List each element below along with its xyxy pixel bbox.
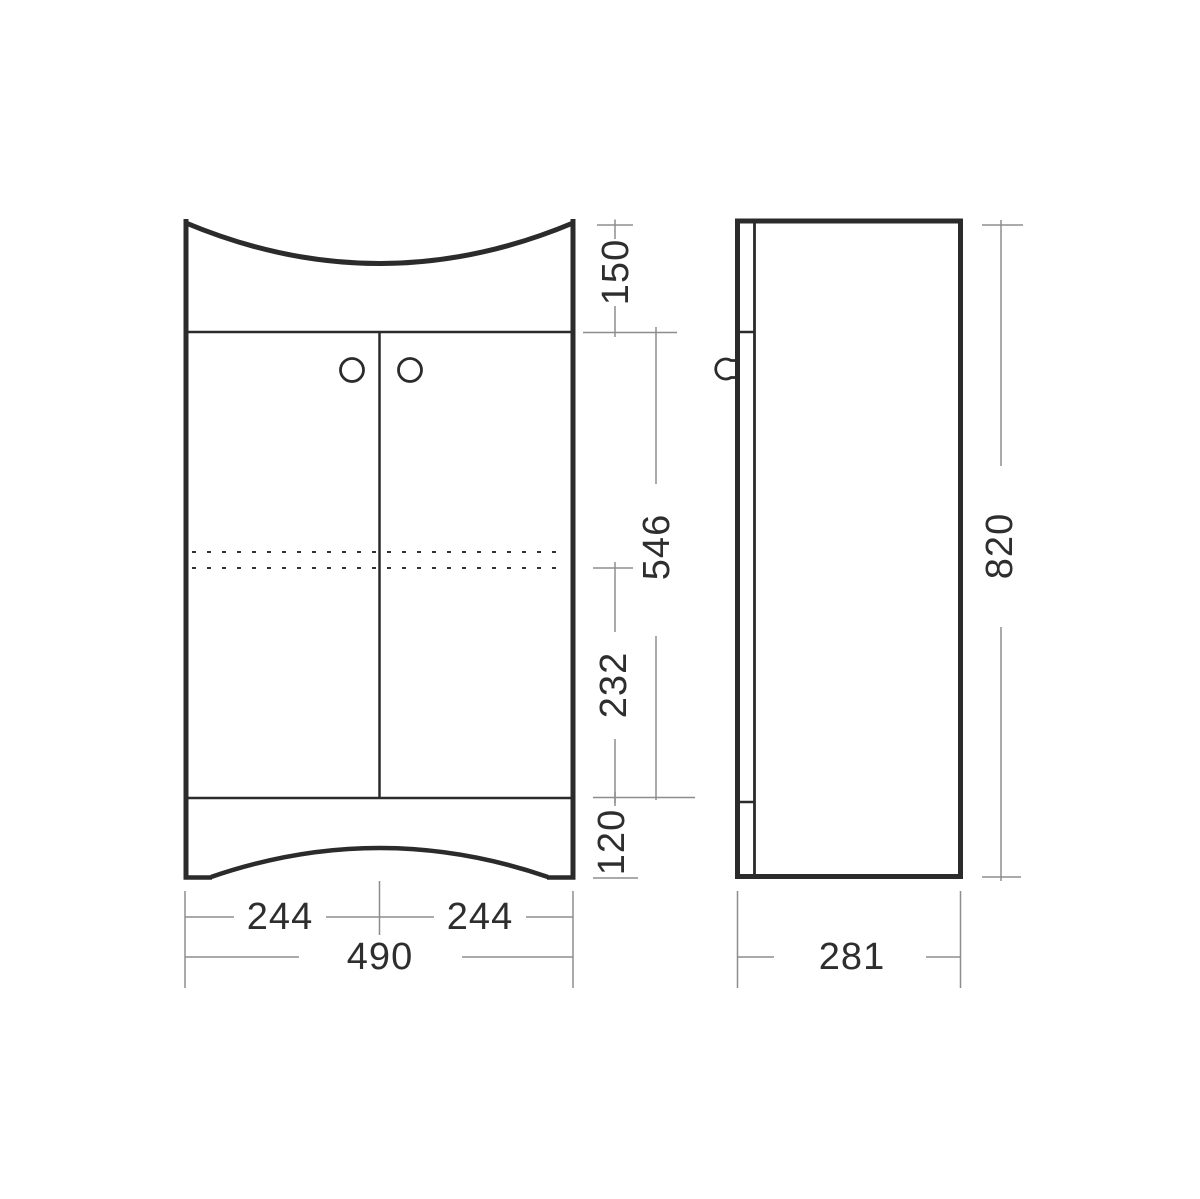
dim-label-overall-depth: 281 bbox=[819, 936, 885, 978]
right-door-knob-icon bbox=[399, 359, 422, 382]
dim-label-plinth: 120 bbox=[591, 809, 633, 875]
dim-label-doors-height: 546 bbox=[636, 514, 678, 580]
front-elevation bbox=[184, 219, 576, 880]
vanity-unit-technical-drawing: 150 546 232 120 244 244 490 bbox=[0, 0, 1200, 1199]
side-elevation bbox=[716, 221, 961, 877]
dim-label-overall-height: 820 bbox=[979, 513, 1021, 579]
dim-label-shelf-to-plinth: 232 bbox=[593, 652, 635, 718]
side-dimensions: 820 281 bbox=[738, 220, 1024, 988]
front-height-dimensions: 150 546 232 120 bbox=[583, 220, 695, 879]
front-plinth-arch-curve bbox=[211, 848, 548, 877]
side-door-knob-profile-icon bbox=[716, 359, 737, 379]
dim-label-door-left-width: 244 bbox=[247, 896, 313, 938]
side-outline bbox=[738, 221, 961, 877]
dim-label-top-section: 150 bbox=[595, 239, 637, 305]
left-door-knob-icon bbox=[341, 359, 364, 382]
dim-label-overall-width: 490 bbox=[347, 936, 413, 978]
front-width-dimensions: 244 244 490 bbox=[185, 881, 573, 988]
dim-label-door-right-width: 244 bbox=[447, 896, 513, 938]
front-top-curve bbox=[186, 223, 573, 264]
